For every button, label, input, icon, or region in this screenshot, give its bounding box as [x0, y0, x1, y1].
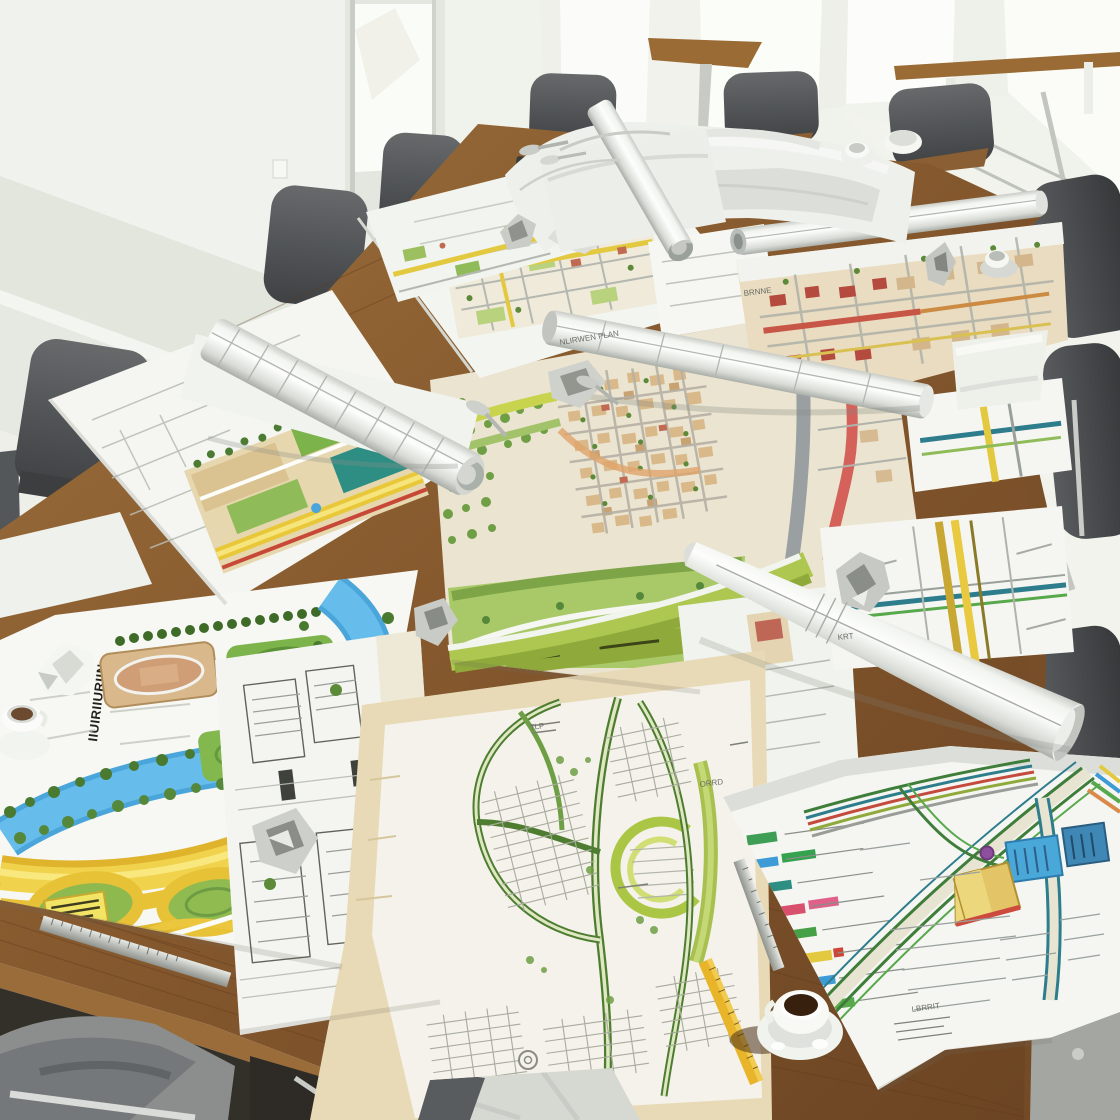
svg-text:KRT: KRT [837, 631, 854, 642]
svg-text:TLP: TLP [529, 721, 545, 732]
